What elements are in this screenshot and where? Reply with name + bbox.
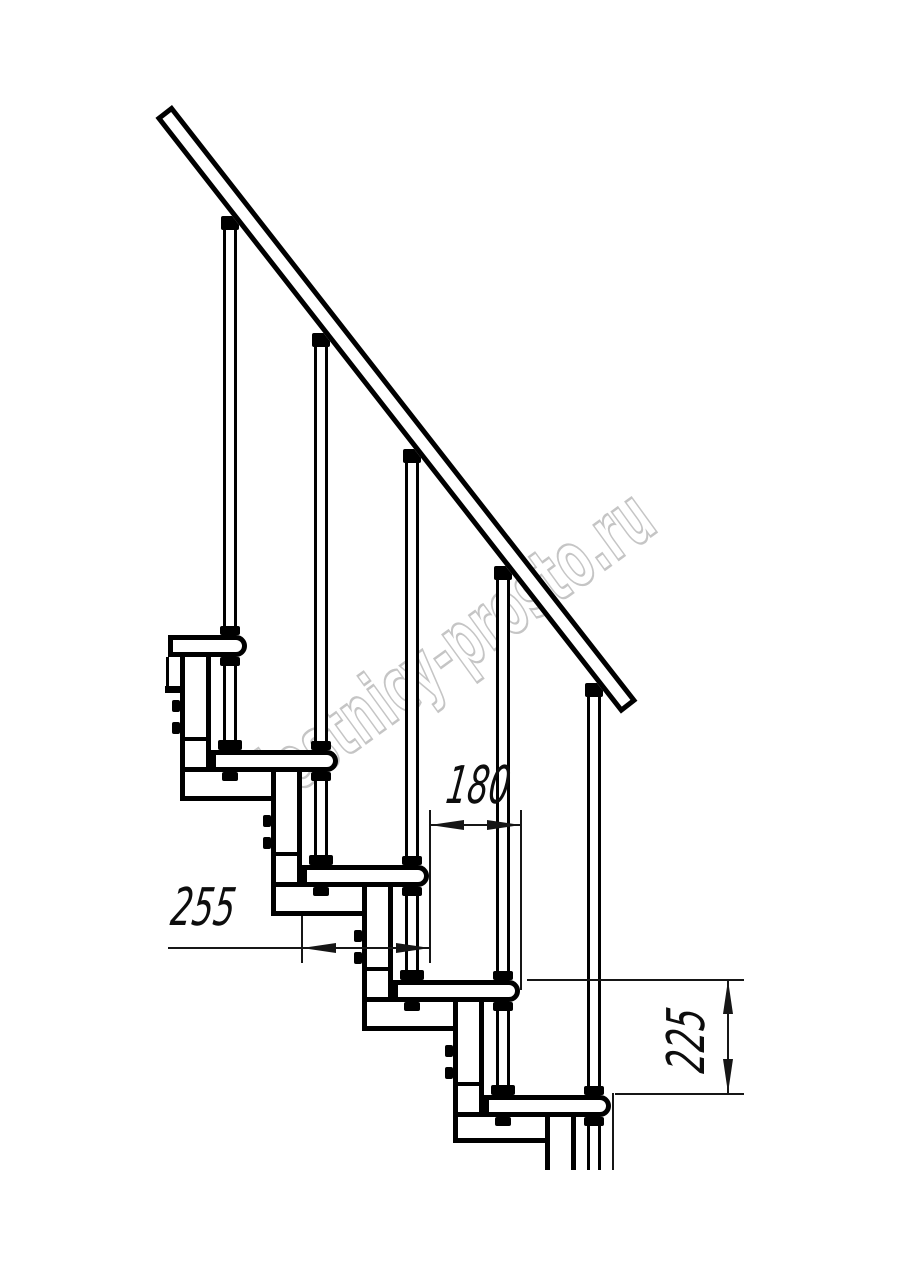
module-joint	[458, 1082, 479, 1086]
tread1-back-tab	[165, 686, 181, 693]
module-joint	[276, 852, 297, 856]
foot-bolt-nut	[495, 1117, 511, 1126]
tread-2	[211, 750, 338, 772]
dimension-label-255: 255	[168, 882, 239, 934]
arrowhead-left-icon	[302, 943, 336, 953]
tread-1	[168, 635, 247, 657]
support-post-3	[405, 896, 419, 970]
spine-module-3	[362, 882, 393, 1002]
bolt-tab	[172, 722, 180, 734]
extension-line-255-left	[301, 916, 303, 963]
support-post-1	[223, 666, 237, 740]
foot-bolt-nut	[404, 1002, 420, 1011]
post-nut	[402, 887, 422, 896]
post-foot	[400, 970, 424, 980]
foot-bolt-nut	[313, 887, 329, 896]
extension-line-225-bottom	[615, 1093, 744, 1095]
bolt-tab	[172, 700, 180, 712]
arrowhead-right-icon	[396, 943, 430, 953]
post-nut	[584, 1117, 604, 1126]
arrowhead-down-icon	[723, 1059, 733, 1093]
foot-bolt-nut	[222, 772, 238, 781]
post-nut	[220, 657, 240, 666]
baluster-5	[587, 697, 601, 1086]
dimension-line-255	[168, 947, 430, 949]
spine-module-2	[271, 767, 302, 887]
baluster-nut	[402, 856, 422, 865]
tread-5	[484, 1095, 611, 1117]
bolt-tab	[445, 1067, 453, 1079]
baluster-nut	[220, 626, 240, 635]
support-post-4	[496, 1011, 510, 1085]
bolt-tab	[354, 952, 362, 964]
extension-line-180-right	[520, 810, 522, 990]
baluster-3	[405, 463, 419, 856]
post-foot	[218, 740, 242, 750]
post-nut	[493, 1002, 513, 1011]
post-foot	[309, 855, 333, 865]
baluster-nut	[311, 741, 331, 750]
support-post-5-cut	[587, 1126, 601, 1170]
lower-structure-edge-line	[612, 1093, 614, 1170]
arrowhead-up-icon	[723, 980, 733, 1014]
baluster-2	[314, 347, 328, 741]
bolt-tab	[263, 815, 271, 827]
baluster-nut	[493, 971, 513, 980]
module-joint	[185, 737, 206, 741]
baluster-nut	[584, 1086, 604, 1095]
extension-line-shared-255-180	[429, 810, 431, 963]
arrowhead-left-icon	[430, 820, 464, 830]
dimension-label-225: 225	[659, 1001, 715, 1079]
spine-module-5-cut	[545, 1112, 576, 1170]
module-joint	[367, 967, 388, 971]
support-post-2	[314, 781, 328, 855]
bolt-tab	[354, 930, 362, 942]
bolt-tab	[263, 837, 271, 849]
tread-3	[302, 865, 429, 887]
post-foot	[491, 1085, 515, 1095]
post-nut	[311, 772, 331, 781]
baluster-1	[223, 230, 237, 626]
tread-4	[393, 980, 520, 1002]
extension-line-225-top	[527, 979, 744, 981]
spine-module-4	[453, 997, 484, 1117]
bolt-tab	[445, 1045, 453, 1057]
dimension-label-180: 180	[440, 760, 517, 812]
spine-module-1	[180, 652, 211, 772]
arrowhead-right-icon	[487, 820, 521, 830]
staircase-technical-drawing: lestnicy-prosto.ru	[0, 0, 914, 1280]
